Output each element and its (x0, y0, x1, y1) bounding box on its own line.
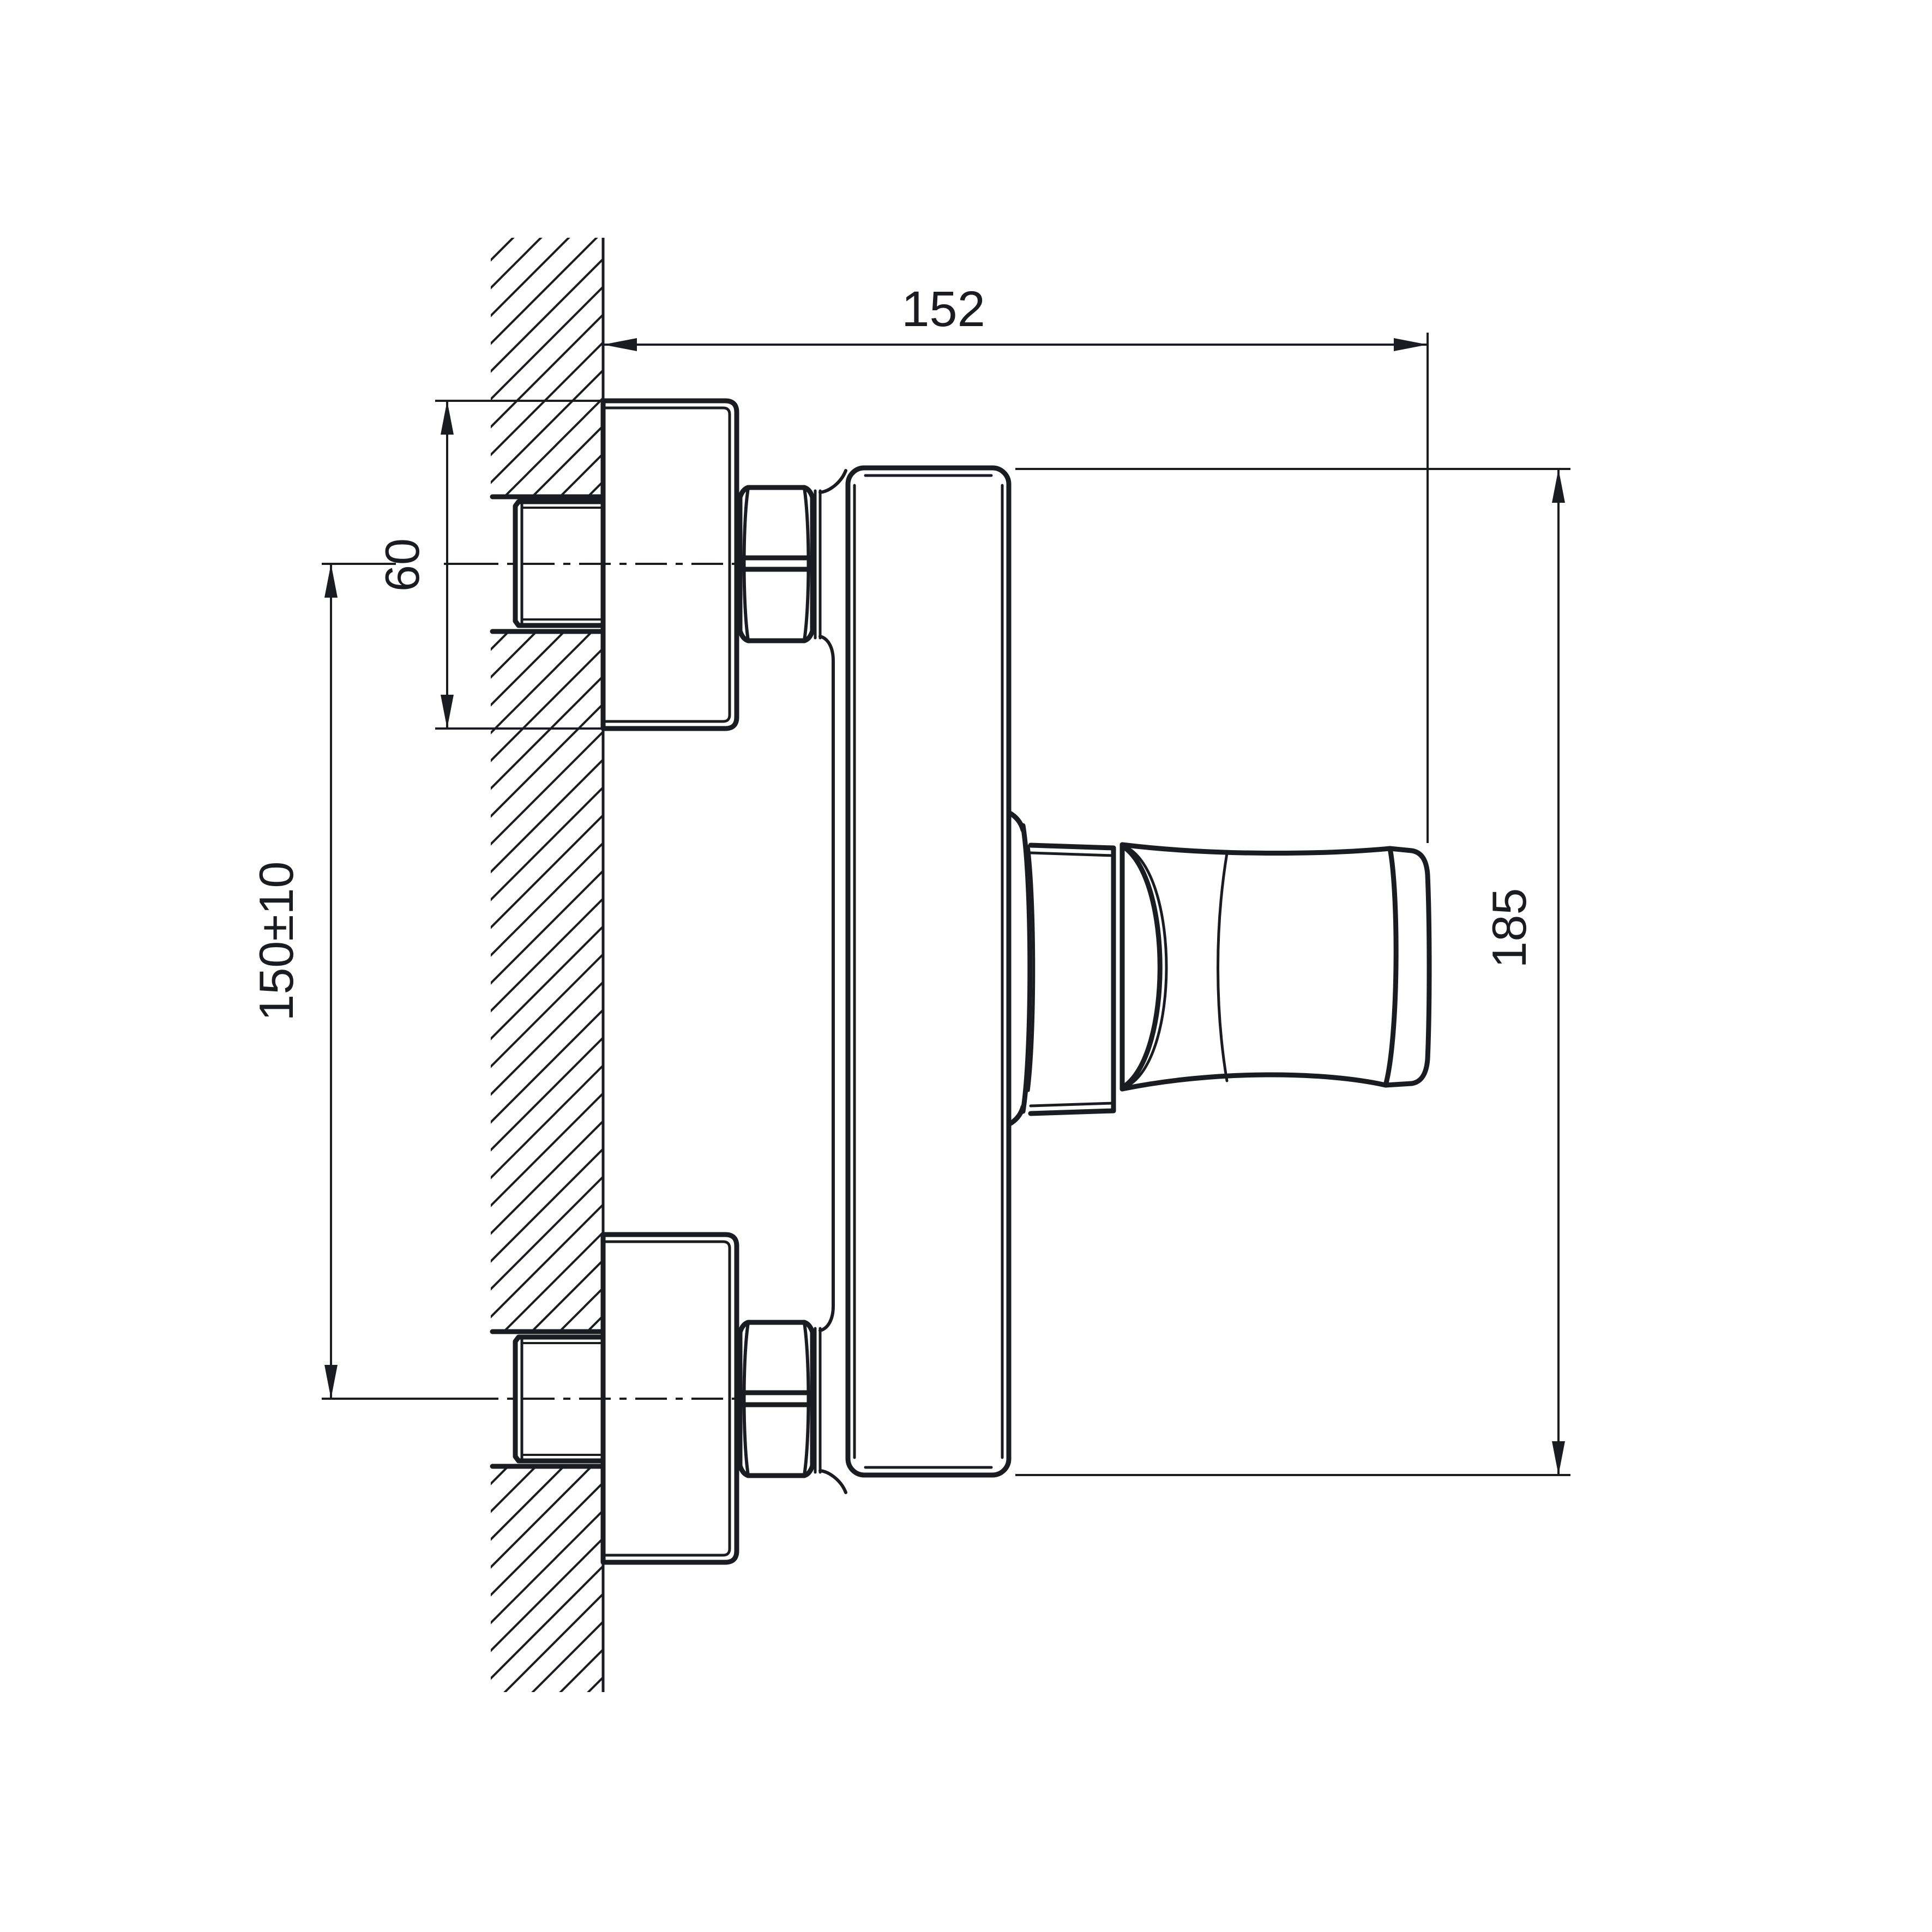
dim-150-label: 150±10 (249, 861, 303, 1021)
dim-60-arrow-top (441, 401, 454, 435)
wall-hatch (491, 238, 603, 1692)
dim-185-arrow-bottom (1552, 1441, 1565, 1475)
dim-185-extensions (1015, 469, 1570, 1475)
dim-150-arrow-top (324, 564, 338, 598)
dim-150-arrow-bottom (324, 1365, 338, 1399)
mixer-body (848, 468, 1009, 1475)
dim-185-arrow-top (1552, 469, 1565, 503)
dim-connection-centers: 150±10 (249, 564, 467, 1399)
valve-cone (1009, 812, 1114, 1124)
dim-60-arrow-bottom (441, 695, 454, 729)
shower-mixer-dimension-drawing: 152 60 150±10 185 (0, 0, 1932, 1932)
dim-152-label: 152 (901, 281, 985, 337)
dim-185-label: 185 (1482, 888, 1536, 968)
technical-drawing-page: 152 60 150±10 185 (0, 0, 1932, 1932)
connection-trim (815, 471, 846, 1492)
lever-handle (1122, 845, 1429, 1089)
dim-152-arrow-right (1394, 338, 1428, 351)
dim-152-arrow-left (603, 338, 637, 351)
dim-body-height: 185 (1015, 469, 1570, 1475)
hex-nut-bottom (740, 1322, 812, 1476)
wall-section (490, 238, 604, 1692)
dim-150-extensions (322, 564, 467, 1399)
hex-nut-top (740, 487, 812, 641)
